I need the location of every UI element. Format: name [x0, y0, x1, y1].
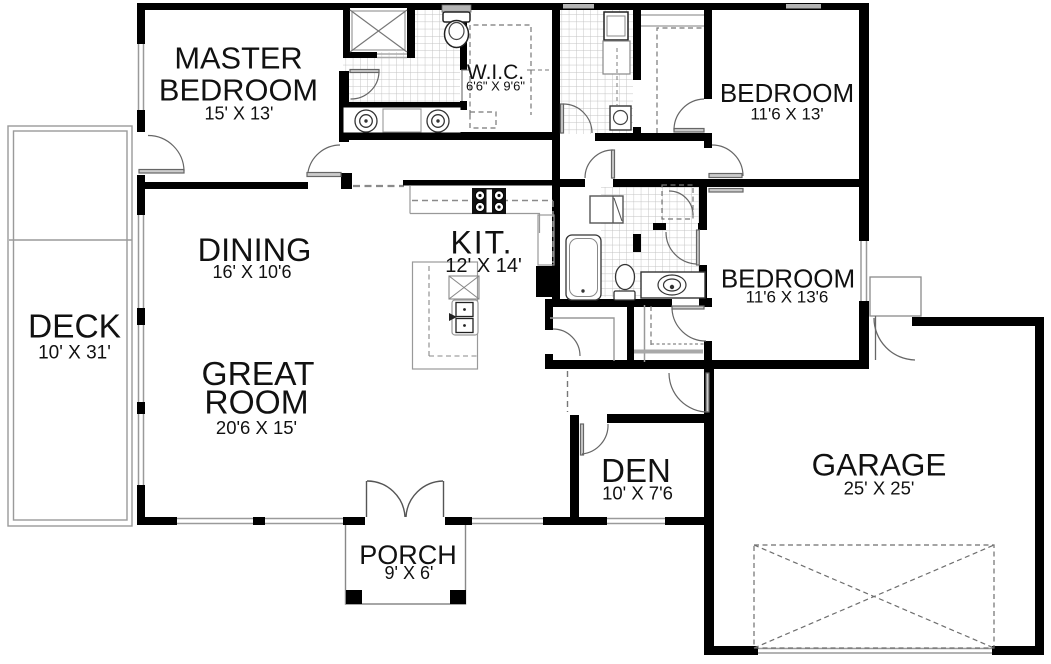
svg-text:10' X 7'6: 10' X 7'6: [602, 483, 673, 504]
svg-text:6'6" X 9'6": 6'6" X 9'6": [466, 79, 525, 94]
svg-text:12' X 14': 12' X 14': [445, 255, 522, 277]
svg-text:9' X 6': 9' X 6': [385, 563, 434, 583]
svg-text:ROOM: ROOM: [204, 385, 308, 422]
svg-text:BEDROOM: BEDROOM: [720, 78, 854, 108]
svg-text:DECK: DECK: [28, 309, 121, 346]
svg-text:11'6 X 13': 11'6 X 13': [750, 105, 823, 124]
svg-text:10' X 31': 10' X 31': [38, 343, 111, 364]
svg-text:MASTER: MASTER: [174, 41, 302, 76]
svg-text:BEDROOM: BEDROOM: [159, 73, 318, 108]
svg-text:25' X 25': 25' X 25': [844, 478, 915, 499]
svg-text:20'6 X 15': 20'6 X 15': [216, 417, 297, 438]
svg-text:16' X 10'6: 16' X 10'6: [213, 262, 292, 282]
svg-text:11'6 X 13'6: 11'6 X 13'6: [746, 288, 829, 307]
svg-text:15' X 13': 15' X 13': [205, 104, 274, 124]
